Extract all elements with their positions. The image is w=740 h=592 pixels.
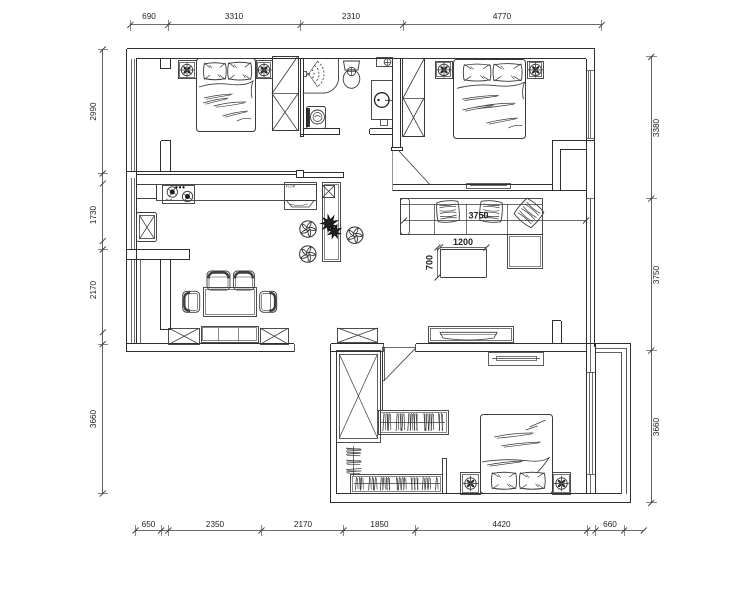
svg-text:3750: 3750 [652,265,661,284]
svg-text:3660: 3660 [652,417,661,436]
svg-text:4420: 4420 [492,520,511,529]
svg-text:3310: 3310 [225,12,244,21]
svg-text:690: 690 [142,12,156,21]
svg-text:3660: 3660 [89,409,98,428]
svg-text:2170: 2170 [89,280,98,299]
svg-text:2990: 2990 [89,102,98,121]
svg-text:2310: 2310 [342,12,361,21]
svg-text:2350: 2350 [206,520,225,529]
svg-text:3380: 3380 [652,118,661,137]
svg-text:1200: 1200 [453,237,473,247]
svg-text:700: 700 [425,255,435,270]
svg-text:1730: 1730 [89,205,98,224]
svg-text:4770: 4770 [493,12,512,21]
svg-text:FLOR: FLOR [286,185,296,189]
svg-text:660: 660 [603,520,617,529]
svg-text:1850: 1850 [370,520,389,529]
svg-text:2170: 2170 [294,520,313,529]
svg-text:3750: 3750 [468,211,488,221]
svg-text:650: 650 [142,520,156,529]
